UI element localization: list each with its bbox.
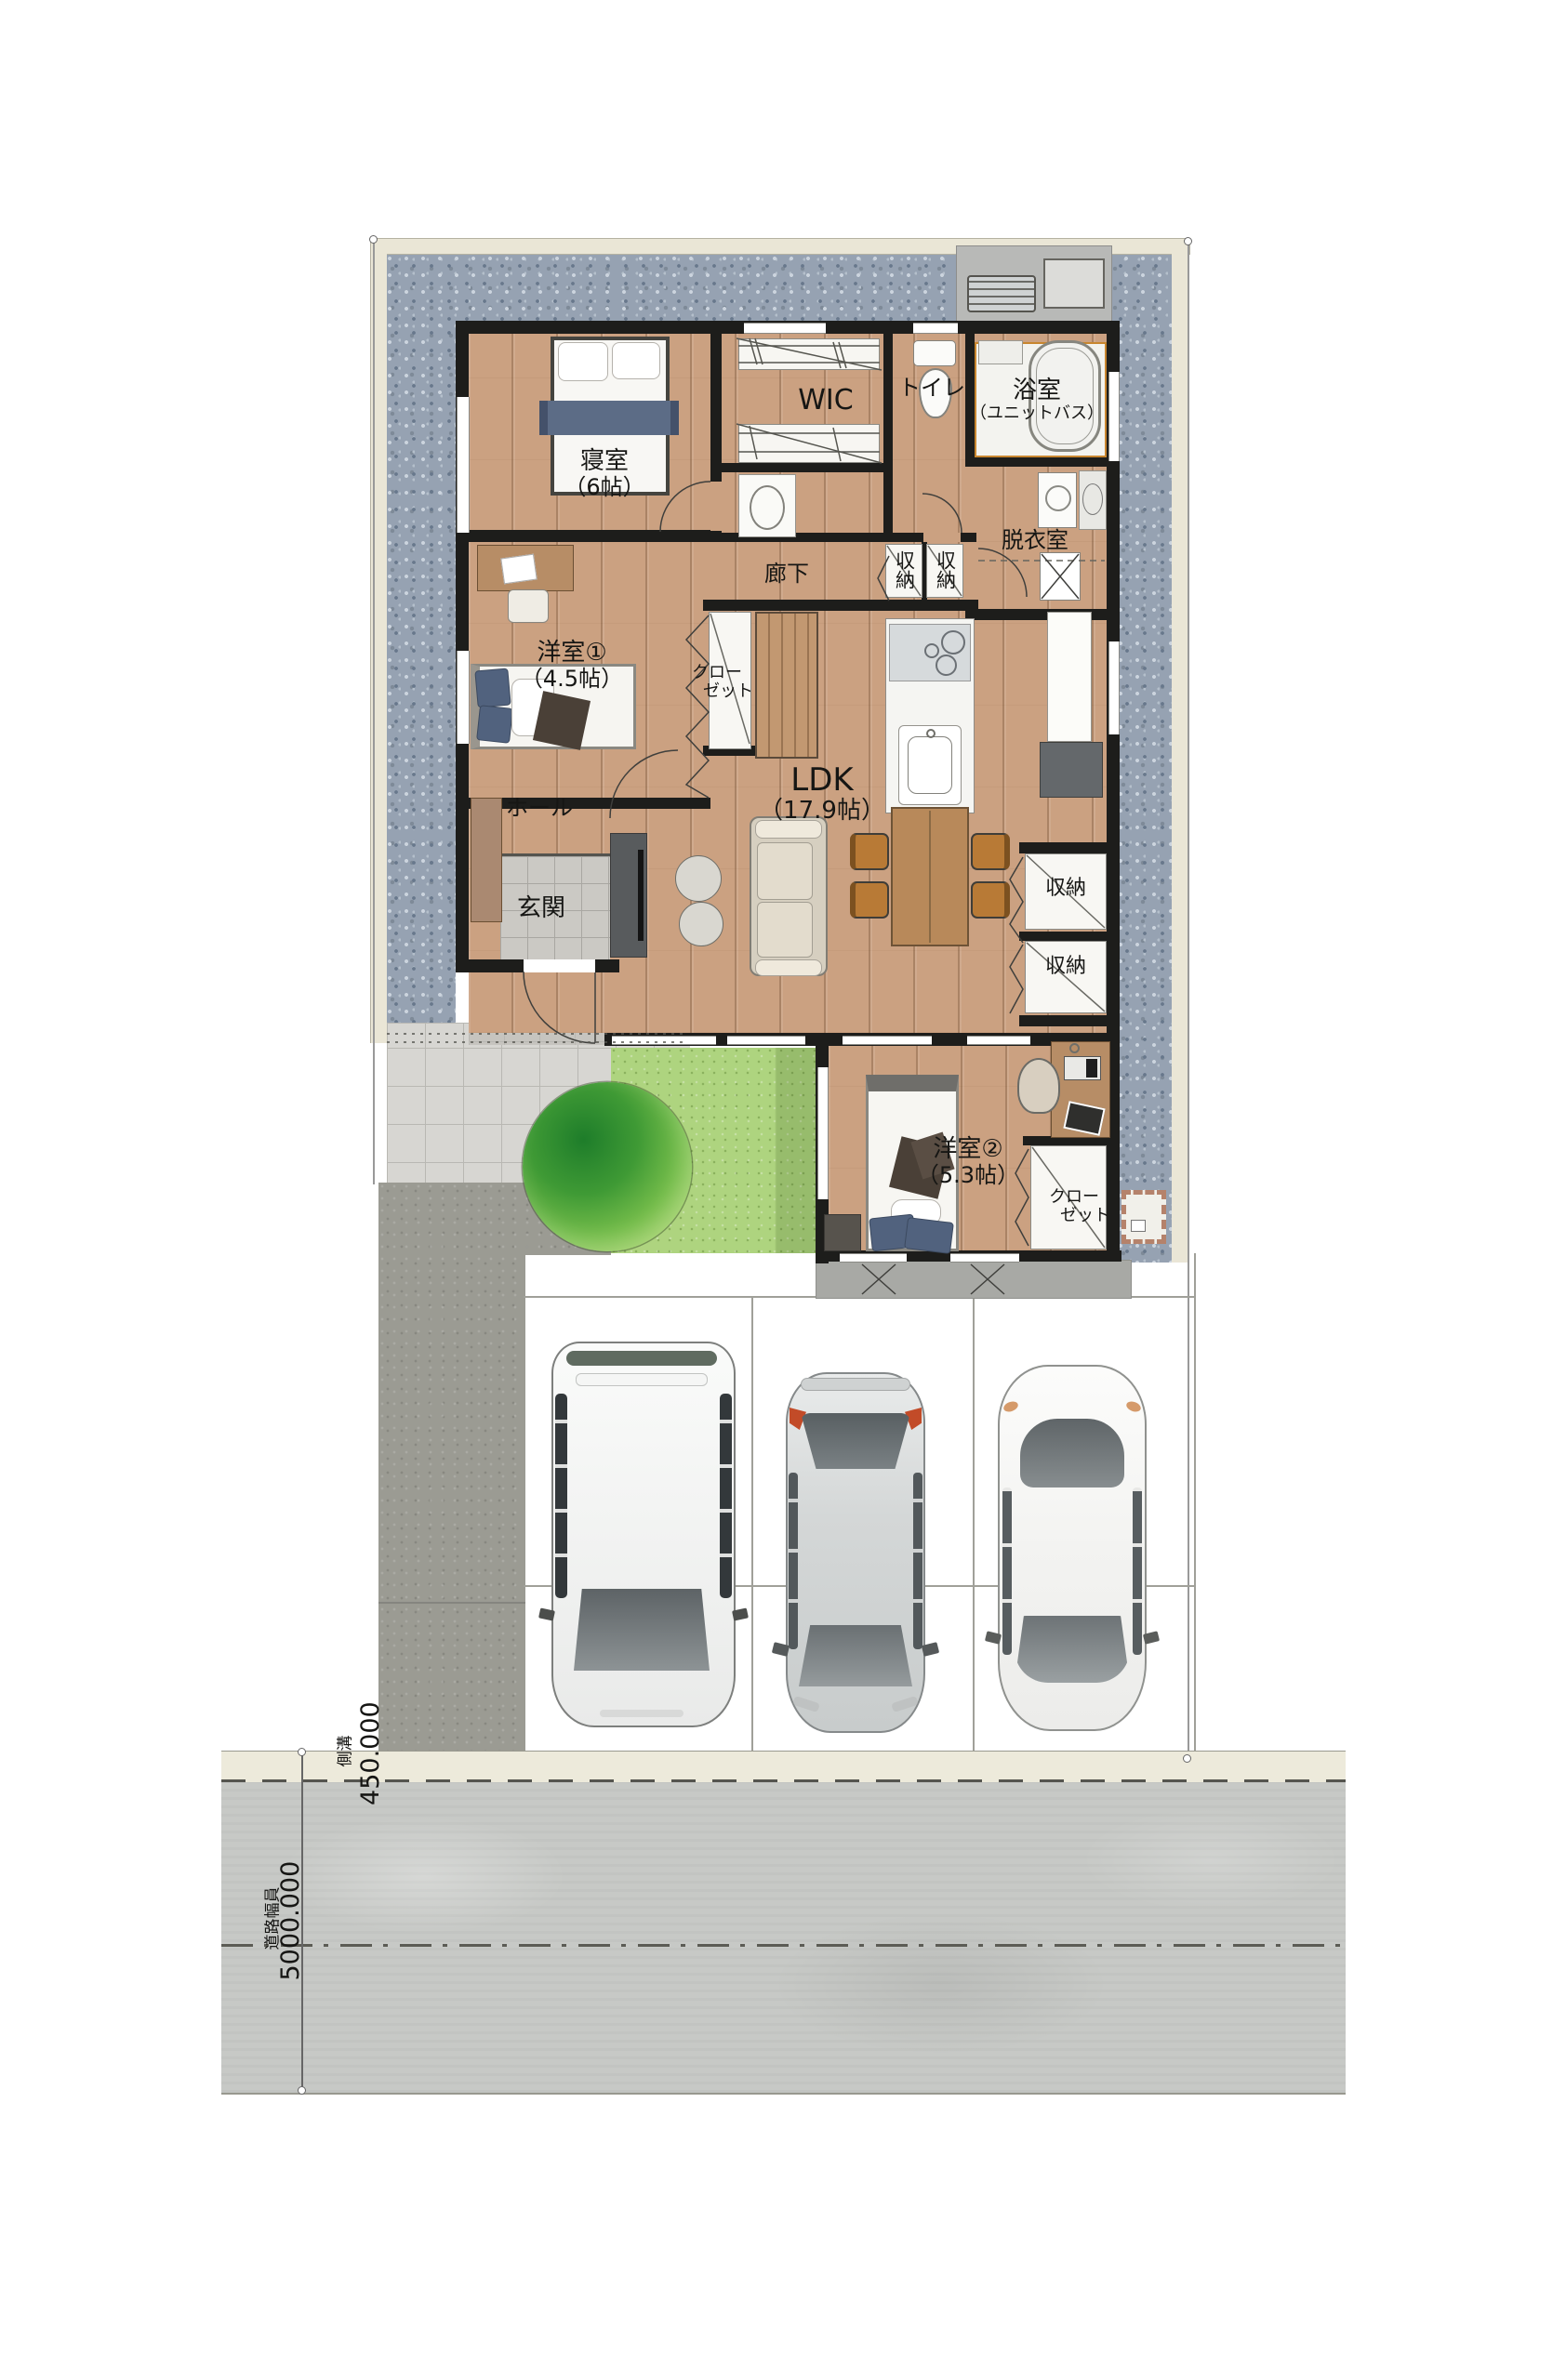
room-label-corridor: 廊下: [740, 562, 833, 587]
storage-label-2: 収納: [934, 550, 956, 589]
storage-label-1: 収納: [893, 550, 915, 589]
closet-label-room1: クローゼット: [692, 664, 757, 701]
room-label-bedroom: 寝室（6帖）: [530, 448, 679, 500]
sedan-spoiler: [801, 1378, 910, 1391]
whitecar-side-glass-right: [1133, 1487, 1142, 1655]
sedan-rear-window: [801, 1413, 910, 1469]
room-label-bathroom: 浴室（ユニットバス）: [962, 377, 1111, 423]
car-sedan: [786, 1372, 925, 1733]
room-label-entrance: 玄関: [495, 895, 588, 922]
closet-label-room2: クローゼット: [1049, 1188, 1114, 1225]
room-label-dressing: 脱衣室: [979, 528, 1091, 553]
van-side-glass-right: [720, 1394, 732, 1598]
van-grille: [600, 1710, 683, 1717]
room-label-ldk: LDK（17.9帖）: [748, 762, 896, 825]
whitecar-windshield: [1015, 1616, 1130, 1683]
plan-linework: [0, 0, 1566, 2380]
floor-plan-canvas: 側溝 450.000 道路幅員 5000.000: [0, 0, 1566, 2380]
storage-label-east-2: 収納: [1029, 956, 1103, 979]
room-label-western1: 洋室①（4.5帖）: [498, 640, 646, 692]
van-side-glass-left: [555, 1394, 567, 1598]
car-van: [551, 1342, 736, 1727]
whitecar-side-glass-left: [1002, 1487, 1012, 1655]
van-windshield: [574, 1589, 710, 1671]
van-rear-glass: [566, 1351, 717, 1366]
room-label-wic: WIC: [779, 385, 872, 416]
storage-label-east-1: 収納: [1029, 878, 1103, 901]
sedan-side-glass-left: [789, 1473, 798, 1649]
sedan-side-glass-right: [913, 1473, 922, 1649]
whitecar-rear-window: [1020, 1419, 1124, 1487]
car-white: [998, 1365, 1147, 1731]
room-label-western2: 洋室②（5.3帖）: [894, 1136, 1042, 1188]
van-roof-hatch: [576, 1373, 708, 1386]
room-label-hall: ホール: [493, 796, 586, 821]
sedan-windshield: [799, 1625, 912, 1686]
